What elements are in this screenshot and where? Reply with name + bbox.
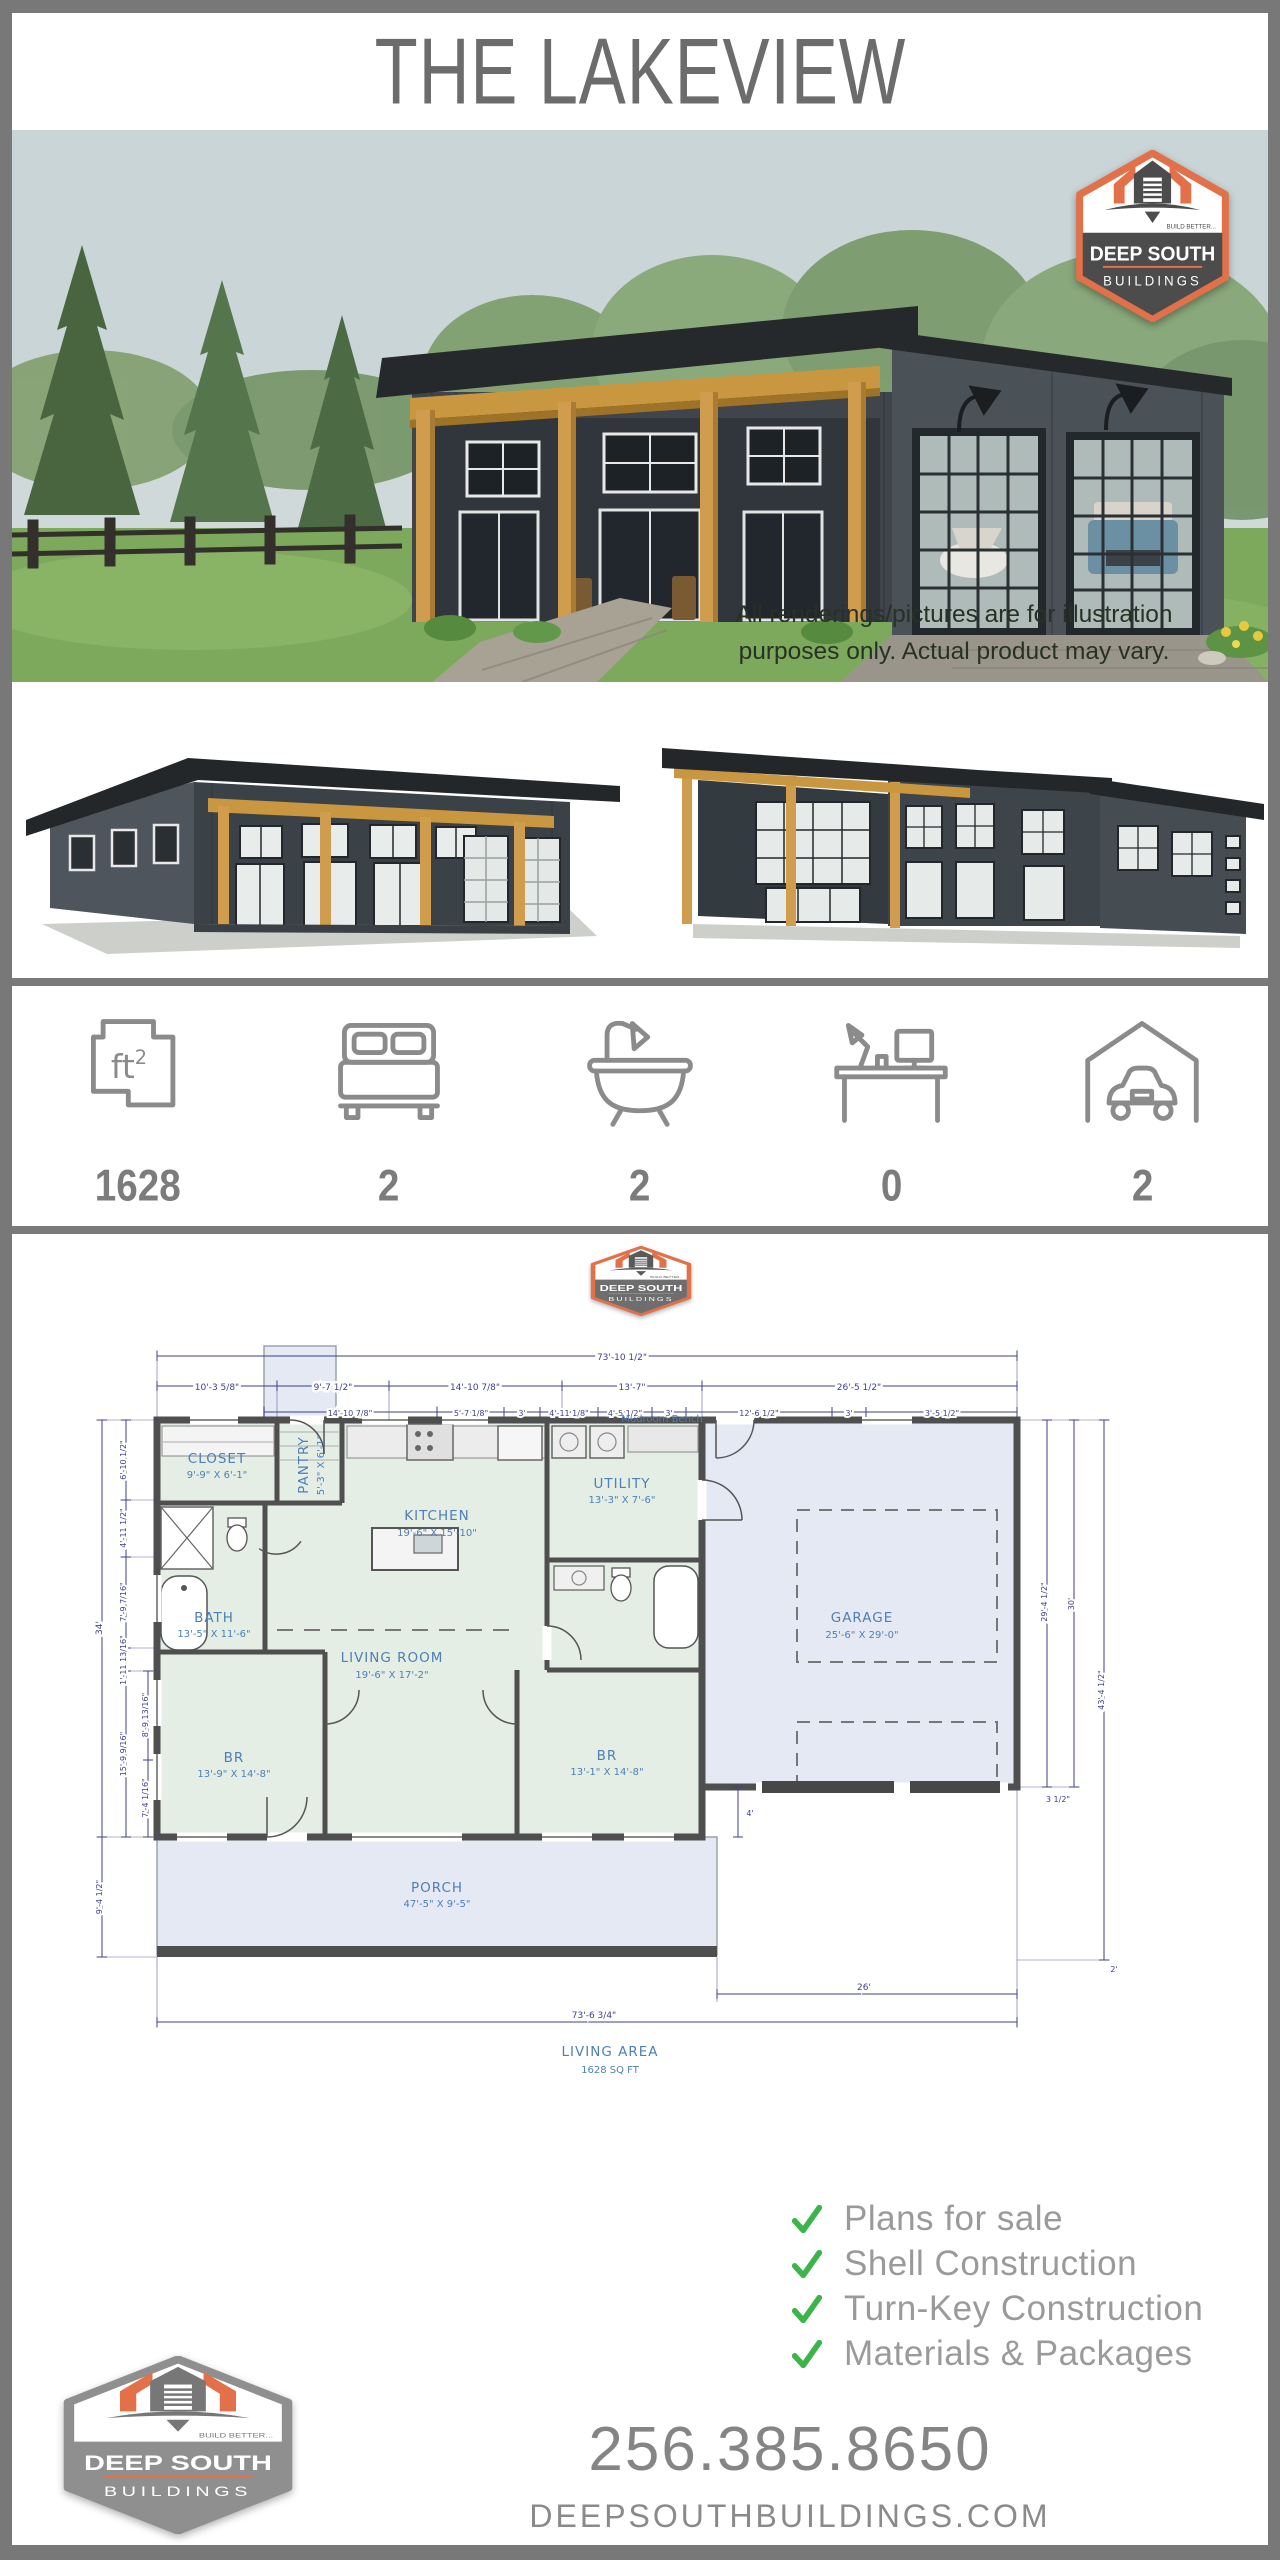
svg-text:3'-5 1/2": 3'-5 1/2" xyxy=(925,1409,959,1418)
svg-text:1'-11 13/16": 1'-11 13/16" xyxy=(119,1635,128,1685)
bathtub-icon xyxy=(561,1008,719,1134)
svg-text:3': 3' xyxy=(845,1409,852,1418)
svg-text:BATH: BATH xyxy=(194,1610,234,1626)
svg-text:26'-5 1/2": 26'-5 1/2" xyxy=(837,1383,881,1393)
svg-text:BUILD BETTER...: BUILD BETTER... xyxy=(199,2432,273,2439)
svg-text:26': 26' xyxy=(857,1983,871,1993)
svg-text:LIVING ROOM: LIVING ROOM xyxy=(341,1650,444,1666)
svg-text:13'-7": 13'-7" xyxy=(618,1383,645,1393)
svg-text:73'-6 3/4": 73'-6 3/4" xyxy=(572,2011,616,2021)
badge-line2: BUILDINGS xyxy=(1103,273,1202,288)
svg-text:14'-10 7/8": 14'-10 7/8" xyxy=(328,1409,373,1418)
flyer-page: THE LAKEVIEW xyxy=(0,0,1280,2560)
stat-office-value: 0 xyxy=(880,1161,901,1211)
sqft-floorplan-icon: ft2 xyxy=(59,1008,217,1134)
svg-text:BR: BR xyxy=(224,1750,245,1766)
svg-text:2': 2' xyxy=(1110,1965,1117,1974)
svg-text:13'-9" X 14'-8": 13'-9" X 14'-8" xyxy=(197,1769,270,1780)
service-item: Shell Construction xyxy=(790,2241,1203,2286)
title-band: THE LAKEVIEW xyxy=(12,13,1268,130)
svg-text:13'-1" X 14'-8": 13'-1" X 14'-8" xyxy=(570,1767,643,1778)
badge-tagline: BUILD BETTER... xyxy=(1167,224,1217,231)
floor-plan-drawing: 73'-10 1/2" 10'-3 5/8" 9'-7 1/2" 14'-10 … xyxy=(62,1330,1182,2130)
separator-bar xyxy=(0,1226,1280,1234)
svg-text:3 1/2": 3 1/2" xyxy=(1046,1795,1070,1804)
stat-garage: 2 xyxy=(1017,986,1268,1226)
svg-text:5'-7 1/8": 5'-7 1/8" xyxy=(454,1409,488,1418)
svg-text:19'-6" X 15'-10": 19'-6" X 15'-10" xyxy=(397,1528,477,1539)
hero-rendering: BUILD BETTER... DEEP SOUTH BUILDINGS All… xyxy=(12,130,1268,682)
stat-bathrooms-value: 2 xyxy=(629,1161,650,1211)
service-item: Turn-Key Construction xyxy=(790,2286,1203,2331)
check-icon xyxy=(790,2292,824,2326)
desk-icon xyxy=(812,1008,970,1134)
brand-badge-footer: BUILD BETTER... DEEP SOUTH BUILDINGS xyxy=(62,2356,294,2534)
check-icon xyxy=(790,2202,824,2236)
svg-text:PORCH: PORCH xyxy=(411,1880,463,1896)
stat-area: ft2 1628 xyxy=(12,986,263,1226)
svg-text:DEEP SOUTH: DEEP SOUTH xyxy=(600,1284,683,1293)
svg-text:4'-11 1/8": 4'-11 1/8" xyxy=(549,1409,588,1418)
svg-text:29'-4 1/2": 29'-4 1/2" xyxy=(1040,1582,1049,1621)
svg-text:Mudroom Bench: Mudroom Bench xyxy=(621,1414,703,1425)
garage-door-panels xyxy=(756,1781,1008,1793)
svg-text:BUILDINGS: BUILDINGS xyxy=(104,2483,252,2500)
svg-text:LIVING AREA: LIVING AREA xyxy=(562,2044,659,2060)
rendering-front-right-view xyxy=(638,684,1268,976)
svg-text:BR: BR xyxy=(597,1748,618,1764)
bed-icon xyxy=(310,1008,468,1134)
svg-text:19'-6" X 17'-2": 19'-6" X 17'-2" xyxy=(355,1670,428,1681)
brand-badge-small: BUILD BETTER... DEEP SOUTH BUILDINGS xyxy=(590,1246,692,1316)
svg-text:9'-4 1/2": 9'-4 1/2" xyxy=(95,1880,104,1914)
page-title: THE LAKEVIEW xyxy=(374,17,906,126)
svg-text:4': 4' xyxy=(746,1809,753,1818)
svg-text:4'-11 1/2": 4'-11 1/2" xyxy=(119,1508,128,1547)
svg-text:7'-9 7/16": 7'-9 7/16" xyxy=(119,1582,128,1621)
stat-garage-value: 2 xyxy=(1132,1161,1153,1211)
svg-text:13'-3" X 7'-6": 13'-3" X 7'-6" xyxy=(589,1495,656,1506)
svg-text:47'-5" X 9'-5": 47'-5" X 9'-5" xyxy=(404,1899,471,1910)
svg-text:9'-7 1/2": 9'-7 1/2" xyxy=(314,1383,353,1393)
brand-badge: BUILD BETTER... DEEP SOUTH BUILDINGS xyxy=(1075,150,1230,322)
stat-area-value: 1628 xyxy=(95,1161,181,1211)
svg-text:KITCHEN: KITCHEN xyxy=(404,1508,470,1524)
badge-line1: DEEP SOUTH xyxy=(1090,243,1216,265)
svg-text:10'-3 5/8": 10'-3 5/8" xyxy=(195,1383,239,1393)
check-icon xyxy=(790,2247,824,2281)
svg-text:5'-3" X 6'-1": 5'-3" X 6'-1" xyxy=(316,1435,327,1496)
svg-text:UTILITY: UTILITY xyxy=(593,1476,650,1492)
rendering-disclaimer: All renderings/pictures are for illustra… xyxy=(654,596,1254,670)
separator-bar xyxy=(0,978,1280,986)
stat-bedrooms: 2 xyxy=(263,986,514,1226)
svg-text:6'-10 1/2": 6'-10 1/2" xyxy=(119,1440,128,1479)
service-item: Plans for sale xyxy=(790,2196,1203,2241)
svg-text:25'-6" X 29'-0": 25'-6" X 29'-0" xyxy=(825,1630,898,1641)
stat-bedrooms-value: 2 xyxy=(378,1161,399,1211)
rendering-front-left-view xyxy=(12,684,634,976)
floor-plan-section: BUILD BETTER... DEEP SOUTH BUILDINGS xyxy=(12,1234,1268,2180)
check-icon xyxy=(790,2337,824,2371)
website-url[interactable]: DEEPSOUTHBUILDINGS.COM xyxy=(340,2498,1240,2535)
svg-text:43'-4 1/2": 43'-4 1/2" xyxy=(1097,1670,1106,1709)
garage-car-icon xyxy=(1063,1008,1221,1134)
svg-text:BUILDINGS: BUILDINGS xyxy=(608,1296,673,1303)
svg-text:DEEP SOUTH: DEEP SOUTH xyxy=(84,2452,272,2475)
stats-row: ft2 1628 2 xyxy=(12,986,1268,1226)
svg-text:CLOSET: CLOSET xyxy=(188,1451,246,1467)
svg-text:GARAGE: GARAGE xyxy=(831,1610,894,1626)
svg-text:30': 30' xyxy=(1067,1598,1076,1610)
svg-text:9'-9" X 6'-1": 9'-9" X 6'-1" xyxy=(187,1470,248,1481)
svg-text:PANTRY: PANTRY xyxy=(296,1436,312,1494)
svg-text:73'-10 1/2": 73'-10 1/2" xyxy=(597,1353,647,1363)
stat-office: 0 xyxy=(766,986,1017,1226)
svg-text:7'-4 1/16": 7'-4 1/16" xyxy=(141,1778,150,1817)
phone-number: 256.385.8650 xyxy=(340,2414,1240,2485)
svg-text:8'-9 13/16": 8'-9 13/16" xyxy=(141,1693,150,1738)
svg-text:BUILD BETTER...: BUILD BETTER... xyxy=(650,1276,683,1279)
svg-text:12'-6 1/2": 12'-6 1/2" xyxy=(739,1409,778,1418)
svg-text:15'-9 9/16": 15'-9 9/16" xyxy=(119,1732,128,1777)
service-item: Materials & Packages xyxy=(790,2331,1203,2376)
services-checklist: Plans for sale Shell Construction Turn-K… xyxy=(790,2196,1203,2376)
svg-text:14'-10 7/8": 14'-10 7/8" xyxy=(450,1383,500,1393)
svg-text:13'-5" X 11'-6": 13'-5" X 11'-6" xyxy=(177,1629,250,1640)
stat-bathrooms: 2 xyxy=(514,986,765,1226)
svg-text:1628 SQ FT: 1628 SQ FT xyxy=(581,2065,640,2076)
svg-text:3': 3' xyxy=(518,1409,525,1418)
svg-text:34': 34' xyxy=(95,1621,105,1635)
svg-text:ft2: ft2 xyxy=(110,1046,146,1086)
secondary-renderings xyxy=(12,682,1268,978)
